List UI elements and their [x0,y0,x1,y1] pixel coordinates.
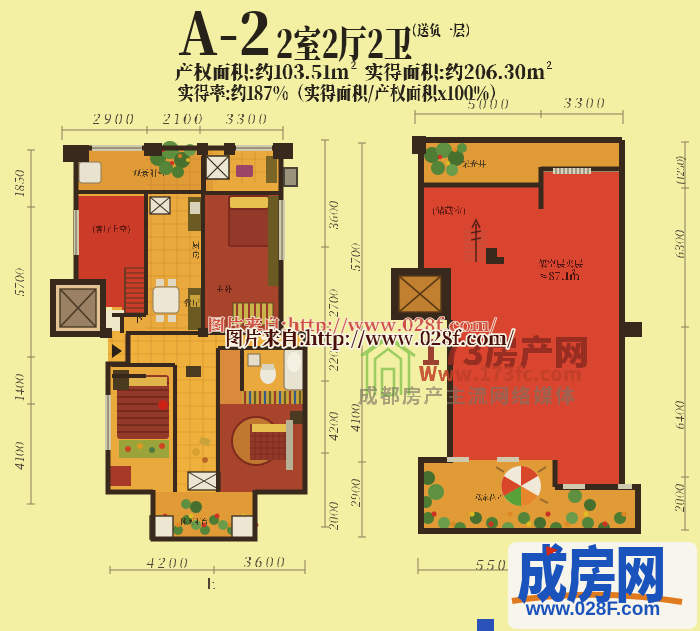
svg-text:www.028F.com: www.028F.com [525,599,660,620]
